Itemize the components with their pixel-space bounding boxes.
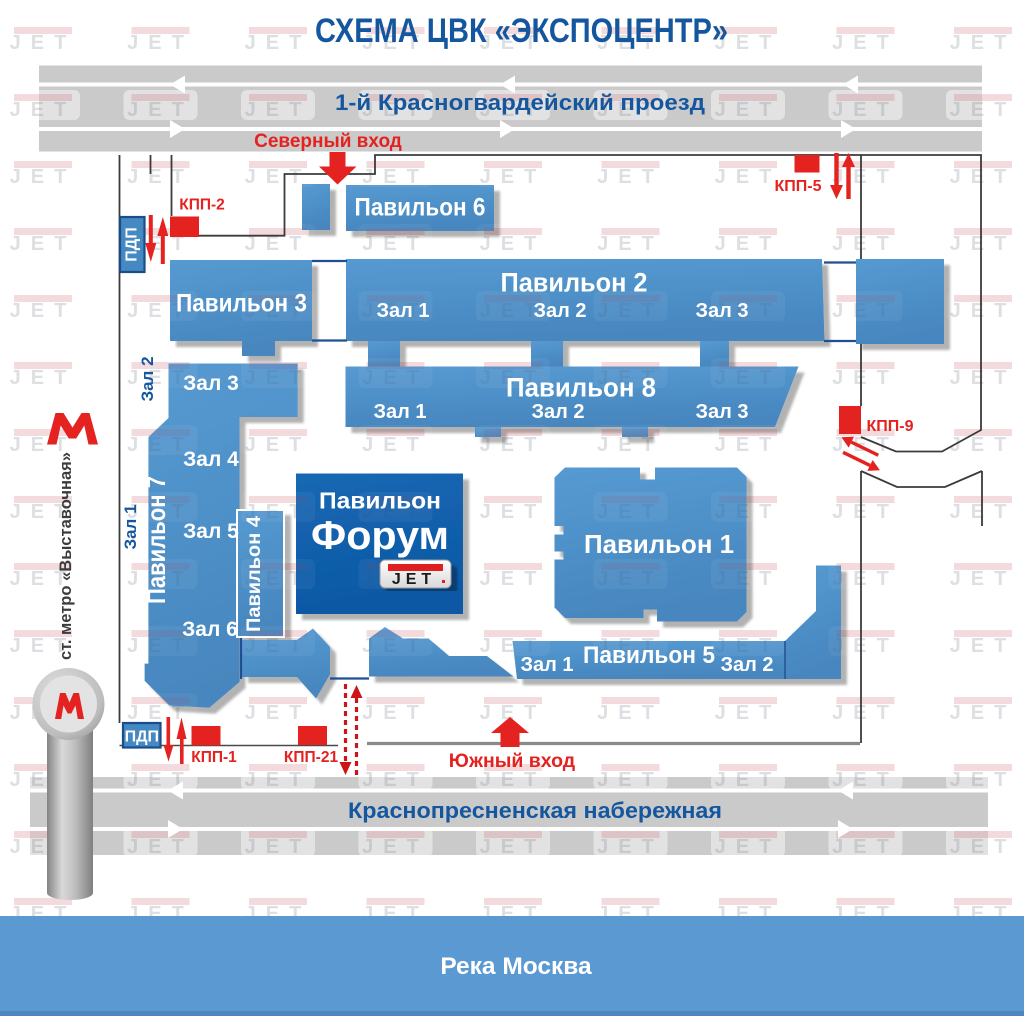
svg-text:ст. метро «Выставочная»: ст. метро «Выставочная»	[57, 452, 75, 660]
svg-text:КПП-1: КПП-1	[191, 749, 237, 766]
svg-text:Северный вход: Северный вход	[254, 131, 402, 152]
svg-text:Краснопресненская набережная: Краснопресненская набережная	[348, 798, 722, 823]
svg-text:КПП-9: КПП-9	[867, 418, 914, 435]
svg-text:Зал 6: Зал 6	[182, 618, 238, 641]
svg-text:Зал 2: Зал 2	[138, 356, 157, 401]
svg-text:Зал 1: Зал 1	[373, 401, 426, 423]
svg-text:Павильон 8: Павильон 8	[506, 373, 656, 403]
svg-text:Зал 3: Зал 3	[695, 401, 748, 423]
svg-text:КПП-2: КПП-2	[179, 197, 225, 214]
svg-text:Зал 3: Зал 3	[695, 300, 748, 322]
svg-text:Павильон 5: Павильон 5	[583, 642, 715, 669]
svg-text:Павильон: Павильон	[319, 488, 441, 514]
svg-text:Павильон 6: Павильон 6	[355, 194, 486, 222]
svg-text:Зал 2: Зал 2	[533, 300, 586, 322]
svg-text:КПП-5: КПП-5	[775, 178, 822, 195]
svg-text:Река Москва: Река Москва	[440, 953, 592, 980]
svg-text:1-й Красногвардейский проезд: 1-й Красногвардейский проезд	[335, 90, 705, 115]
svg-text:Зал 2: Зал 2	[720, 654, 773, 676]
svg-text:Павильон 4: Павильон 4	[244, 516, 265, 632]
svg-text:Зал 3: Зал 3	[183, 372, 239, 395]
svg-text:Зал 1: Зал 1	[121, 504, 140, 549]
svg-text:Павильон 3: Павильон 3	[176, 290, 307, 318]
svg-text:ПДП: ПДП	[125, 729, 159, 746]
svg-text:Южный вход: Южный вход	[449, 750, 576, 772]
svg-text:Зал 4: Зал 4	[183, 448, 239, 471]
svg-text:Зал 1: Зал 1	[376, 300, 429, 322]
svg-text:ПДП: ПДП	[124, 227, 141, 261]
svg-text:Зал 1: Зал 1	[520, 654, 573, 676]
svg-text:Зал 5: Зал 5	[183, 520, 239, 543]
svg-text:JET: JET	[392, 571, 436, 588]
svg-text:Форум: Форум	[311, 514, 449, 558]
svg-text:Павильон 7: Павильон 7	[141, 476, 171, 604]
svg-text:КПП-21: КПП-21	[284, 749, 339, 766]
svg-text:Зал 2: Зал 2	[531, 401, 584, 423]
svg-text:Павильон 1: Павильон 1	[584, 529, 734, 559]
svg-text:Павильон 2: Павильон 2	[501, 268, 648, 298]
svg-text:СХЕМА ЦВК «ЭКСПОЦЕНТР»: СХЕМА ЦВК «ЭКСПОЦЕНТР»	[315, 12, 728, 50]
